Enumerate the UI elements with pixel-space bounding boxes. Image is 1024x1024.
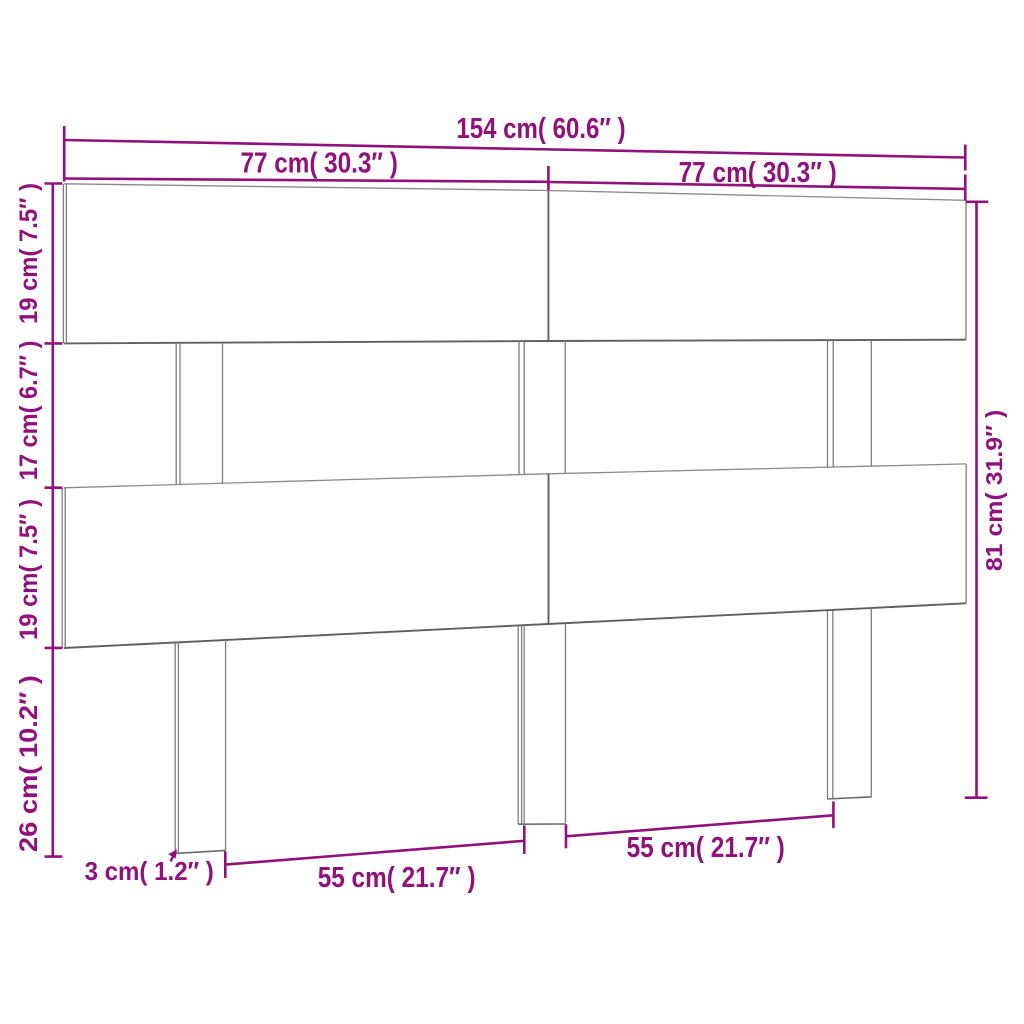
svg-text:55 cm( 21.7″ ): 55 cm( 21.7″ ) (318, 862, 476, 894)
svg-text:154 cm( 60.6″ ): 154 cm( 60.6″ ) (456, 113, 625, 145)
svg-text:81 cm( 31.9″ ): 81 cm( 31.9″ ) (981, 410, 1007, 572)
svg-text:19 cm( 7.5″ ): 19 cm( 7.5″ ) (15, 183, 43, 324)
svg-text:3 cm( 1.2″ ): 3 cm( 1.2″ ) (85, 856, 214, 886)
svg-text:55 cm( 21.7″ ): 55 cm( 21.7″ ) (627, 832, 785, 864)
svg-text:17 cm( 6.7″ ): 17 cm( 6.7″ ) (15, 341, 43, 481)
svg-text:26 cm( 10.2″ ): 26 cm( 10.2″ ) (15, 675, 43, 852)
svg-text:19 cm( 7.5″ ): 19 cm( 7.5″ ) (15, 499, 43, 640)
svg-text:77 cm( 30.3″ ): 77 cm( 30.3″ ) (679, 157, 837, 189)
svg-text:77 cm( 30.3″ ): 77 cm( 30.3″ ) (241, 148, 398, 180)
